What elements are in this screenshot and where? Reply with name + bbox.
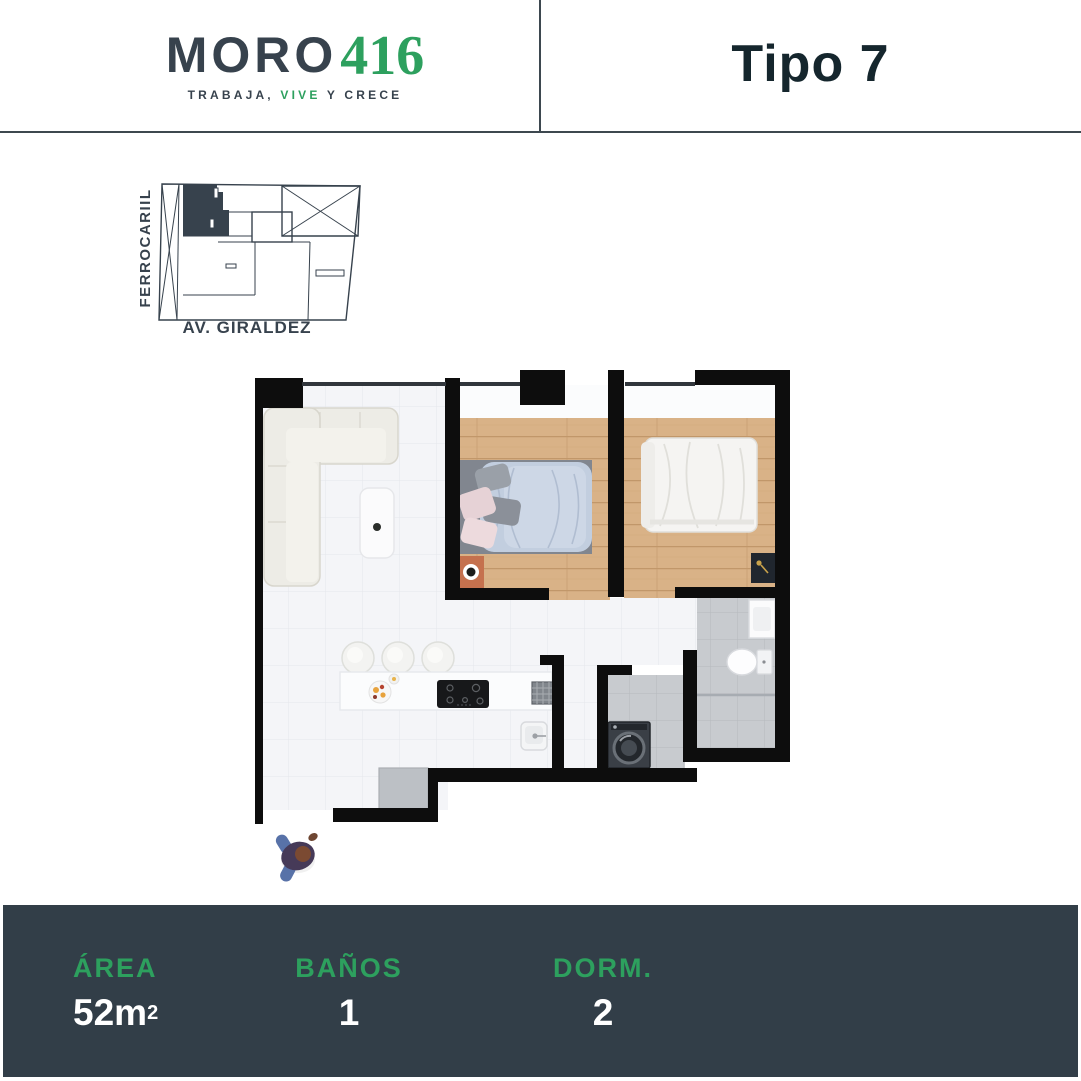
stat-dorm-value: 2 bbox=[538, 994, 668, 1031]
hall-floor-2 bbox=[552, 598, 683, 665]
brand-number: 416 bbox=[340, 25, 424, 87]
site-map-svg bbox=[158, 172, 370, 324]
stairs-block-icon bbox=[282, 186, 360, 236]
stat-dorm: DORM. 2 bbox=[538, 955, 668, 1031]
toilet bbox=[727, 649, 772, 675]
stat-banos-value: 1 bbox=[283, 994, 415, 1031]
nightstand-1 bbox=[458, 556, 484, 588]
window-living bbox=[302, 382, 446, 386]
tagline-part-1: TRABAJA, bbox=[188, 88, 281, 102]
stat-banos: BAÑOS 1 bbox=[283, 955, 415, 1031]
tagline-part-2: VIVE bbox=[280, 88, 320, 102]
flyer-page: { "header": { "brand_primary": "MORO", "… bbox=[0, 0, 1081, 1081]
unit-highlight bbox=[183, 184, 229, 236]
coffee-table bbox=[360, 488, 394, 558]
brand-line: MORO416 bbox=[120, 26, 470, 82]
street-label-ferrocarril: FERROCARIIL bbox=[137, 167, 157, 329]
stat-area-value: 52m2 bbox=[73, 994, 158, 1031]
dish-rack bbox=[532, 682, 554, 704]
hall-floor-3 bbox=[564, 665, 597, 768]
unit-title: Tipo 7 bbox=[541, 38, 1080, 90]
kitchen-mat bbox=[379, 768, 428, 810]
hall-floor-4 bbox=[683, 598, 697, 650]
nightstand-2 bbox=[751, 553, 775, 583]
window-sill-2 bbox=[624, 385, 775, 418]
bed-2 bbox=[641, 438, 757, 532]
bed-1 bbox=[457, 460, 592, 554]
cooktop bbox=[437, 680, 489, 708]
bedroom1-door-floor bbox=[548, 588, 610, 600]
tagline-part-3: Y CRECE bbox=[321, 88, 403, 102]
window-bedroom2 bbox=[625, 382, 695, 386]
street-label-giraldez: AV. GIRALDEZ bbox=[157, 318, 337, 338]
washing-machine bbox=[608, 722, 650, 768]
kitchen-sink bbox=[521, 722, 547, 750]
floor-plan-svg bbox=[252, 370, 792, 882]
stat-area-sup: 2 bbox=[147, 1002, 158, 1024]
window-bedroom1 bbox=[460, 382, 520, 386]
stat-area-label: ÁREA bbox=[73, 955, 158, 982]
header-horizontal-divider bbox=[0, 131, 1081, 133]
footer-bar: ÁREA 52m2 BAÑOS 1 DORM. 2 bbox=[3, 905, 1078, 1077]
person-figure bbox=[274, 831, 320, 882]
stat-banos-label: BAÑOS bbox=[283, 955, 415, 982]
brand-text: MORO bbox=[166, 27, 338, 83]
bar-stools bbox=[342, 642, 454, 674]
brand-tagline: TRABAJA, VIVE Y CRECE bbox=[120, 88, 470, 102]
stat-area: ÁREA 52m2 bbox=[73, 955, 158, 1031]
brand-logo: MORO416 TRABAJA, VIVE Y CRECE bbox=[120, 26, 470, 102]
stat-dorm-label: DORM. bbox=[538, 955, 668, 982]
bathroom-sink bbox=[749, 600, 775, 638]
